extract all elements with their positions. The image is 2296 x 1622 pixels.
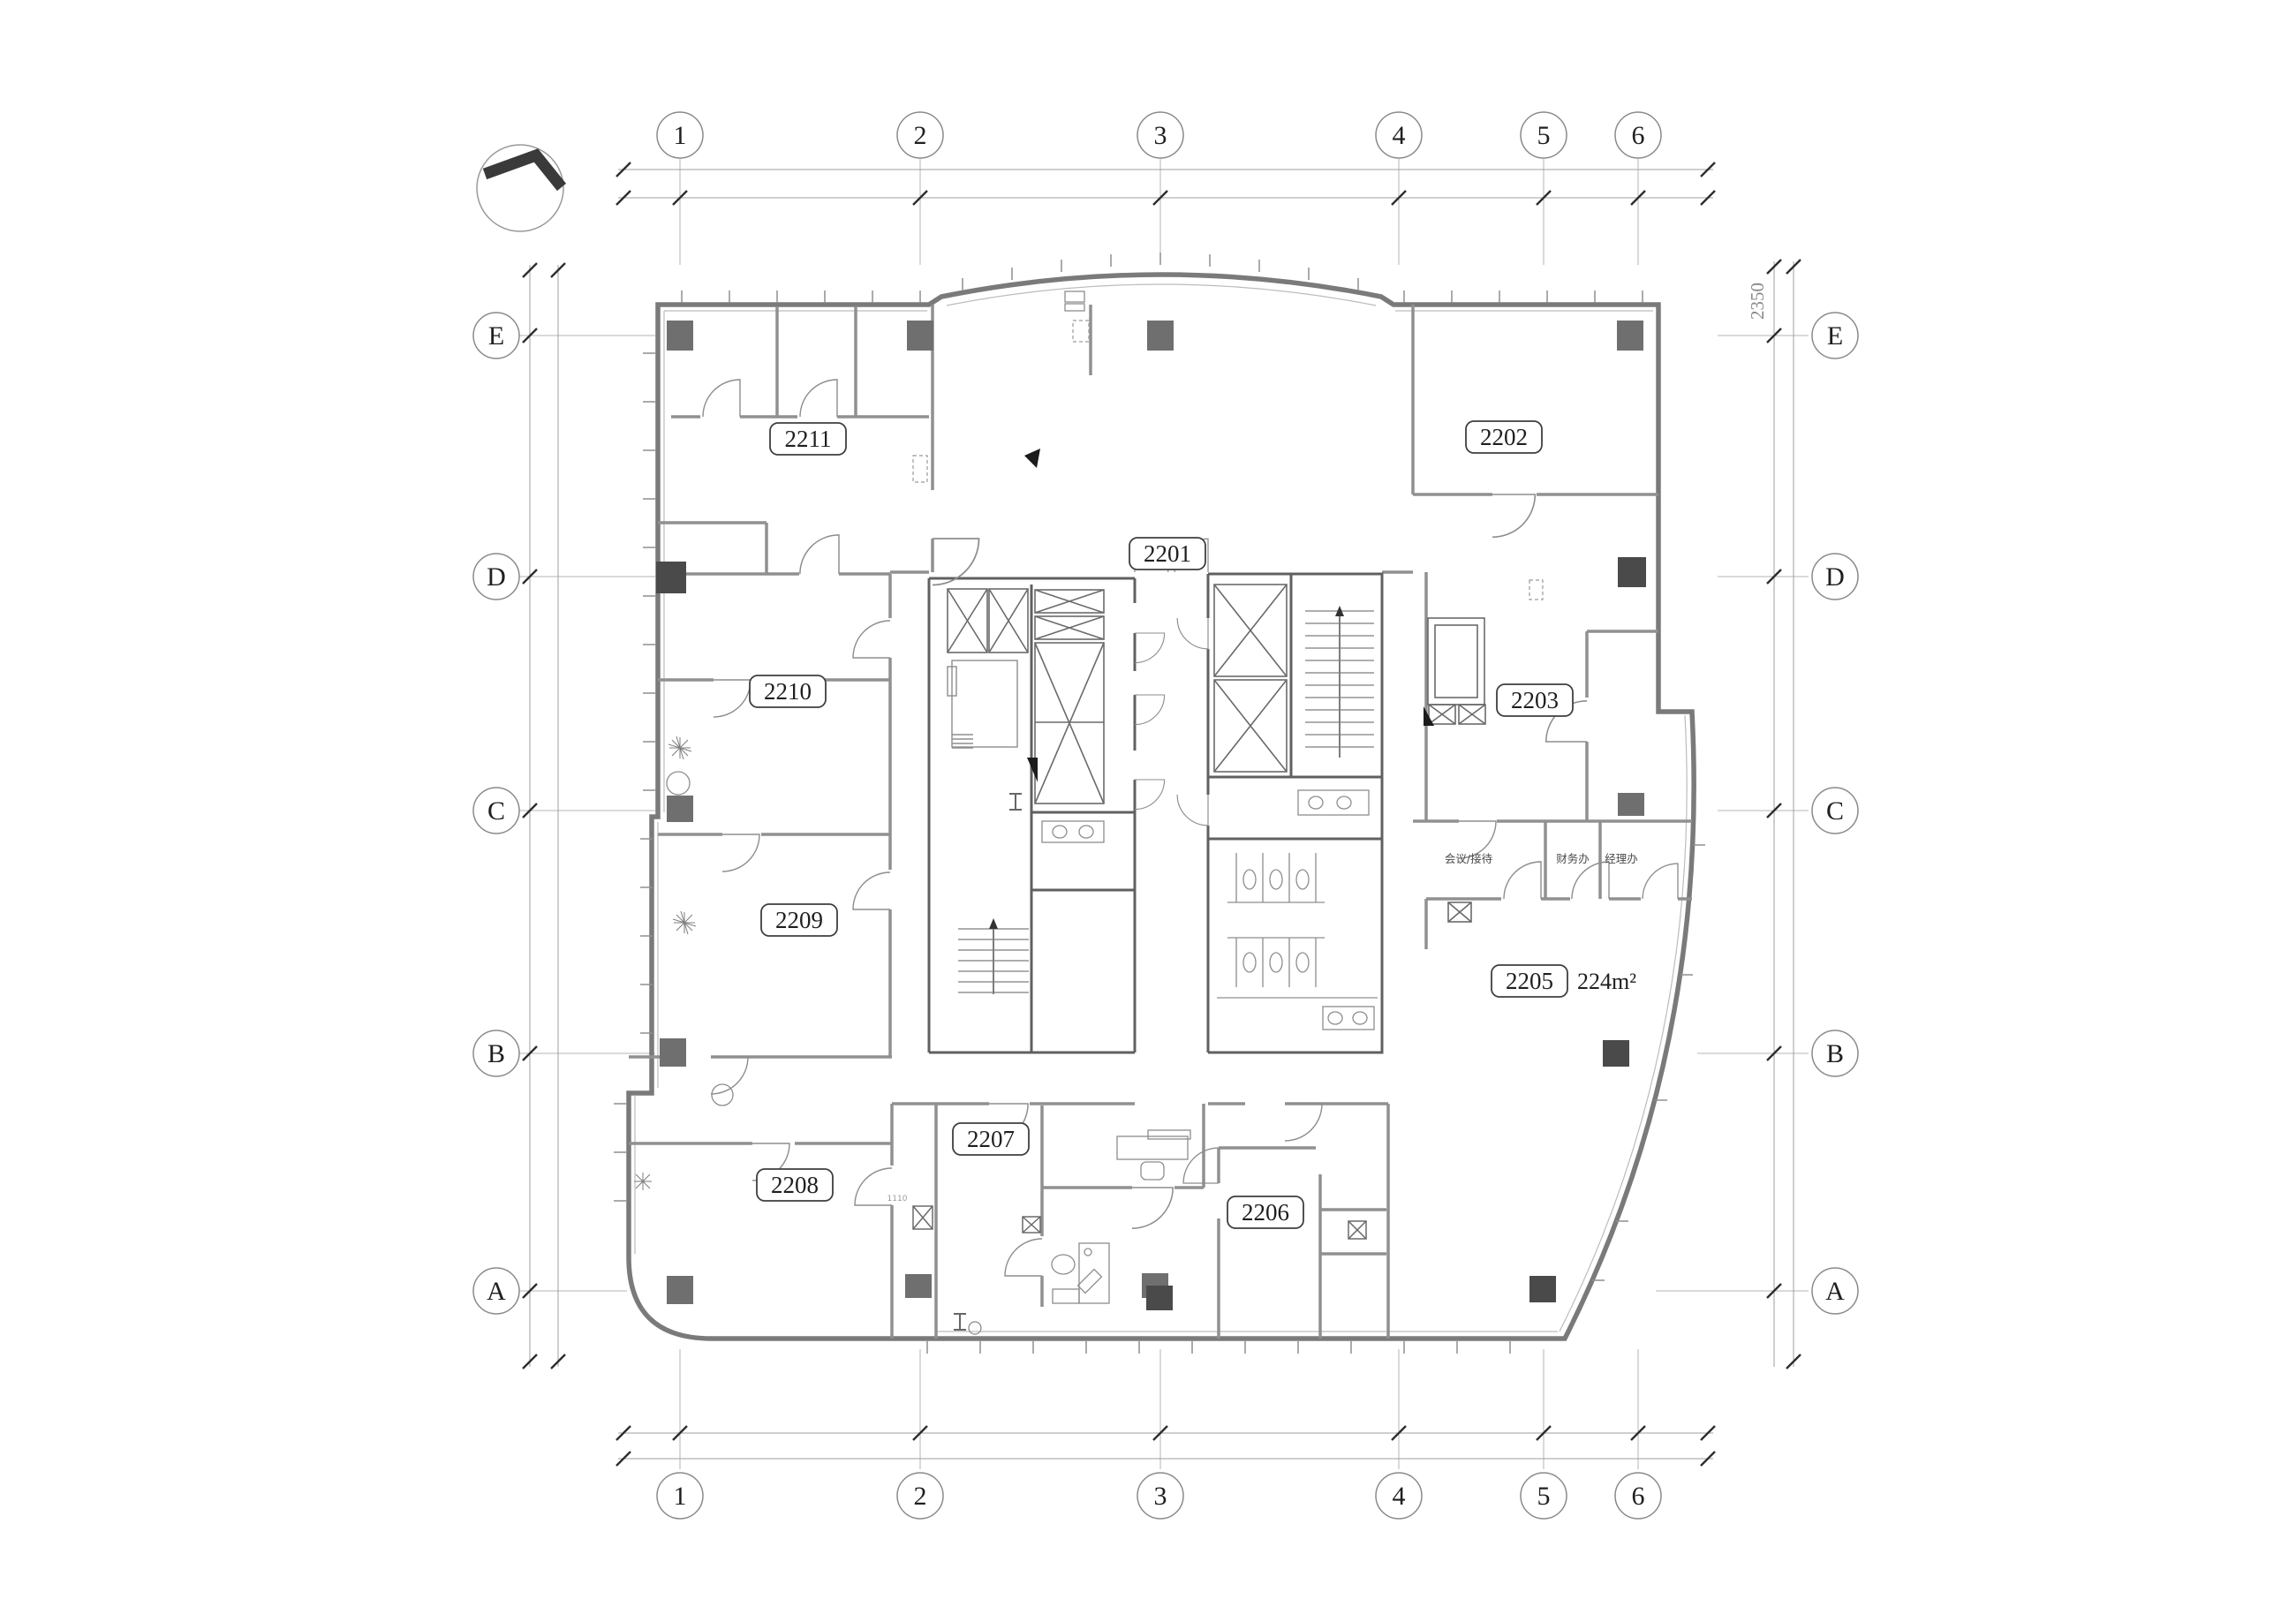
grid-row-B: B — [487, 1039, 505, 1068]
grid-col-6: 6 — [1632, 121, 1645, 150]
elevator-lobby-left — [948, 660, 1017, 748]
shaft-block-ne — [1428, 618, 1485, 922]
grid-col-3: 3 — [1154, 121, 1167, 150]
room-label-2201: 2201 — [1129, 538, 1205, 570]
grid-col-5b: 5 — [1537, 1482, 1551, 1511]
stair-right — [1305, 606, 1374, 758]
room-number: 2208 — [771, 1172, 819, 1198]
plant — [673, 911, 696, 934]
room-label-2206: 2206 — [1227, 1196, 1303, 1228]
door-arc — [800, 535, 839, 574]
plant — [668, 736, 691, 759]
round-table — [667, 772, 690, 795]
room-number: 2210 — [764, 678, 812, 705]
elevator-shafts-left — [948, 589, 1104, 803]
wall-cabinet — [1065, 291, 1084, 311]
grid-bubble-labels-left: E D C B A — [487, 321, 506, 1306]
door-tag: 1110 — [887, 1195, 908, 1203]
floor-plan-drawing: 2350 1 2 3 4 5 6 1 2 3 4 5 6 E D C B A — [0, 0, 2296, 1622]
grid-col-2b: 2 — [914, 1482, 927, 1511]
room-label-2208: 2208 — [757, 1169, 833, 1201]
door-arc — [1177, 795, 1208, 826]
door-arc — [1135, 633, 1165, 663]
room-number: 2207 — [967, 1126, 1015, 1152]
door-arc — [853, 872, 890, 909]
floor-plan-canvas: 2350 1 2 3 4 5 6 1 2 3 4 5 6 E D C B A — [0, 0, 2296, 1622]
door-arc — [800, 380, 837, 417]
grid-col-4b: 4 — [1393, 1482, 1406, 1511]
room-number: 2211 — [785, 426, 832, 452]
door-arc — [1005, 1239, 1042, 1276]
dashed-equipment — [913, 321, 1543, 600]
office-label-meeting: 会议/接待 — [1445, 852, 1493, 865]
door-arc — [1285, 1104, 1322, 1141]
plant — [634, 1173, 652, 1190]
grid-row-E: E — [488, 321, 504, 351]
grid-col-1b: 1 — [674, 1482, 687, 1511]
room-label-2210: 2210 — [750, 675, 826, 707]
room-label-2205: 2205 224m² — [1492, 965, 1636, 997]
north-arrow-icon — [477, 145, 563, 231]
grid-col-1: 1 — [674, 121, 687, 150]
stair-left — [958, 918, 1029, 994]
grid-row-C-r: C — [1826, 796, 1844, 826]
plan-symbols — [913, 321, 1543, 1330]
room-number: 2201 — [1144, 540, 1191, 567]
door-arc — [711, 1057, 748, 1094]
grid-row-A: A — [487, 1277, 506, 1306]
door-arc — [1504, 862, 1541, 899]
grid-bubble-labels-bottom: 1 2 3 4 5 6 — [674, 1482, 1645, 1511]
round-table — [712, 1084, 733, 1105]
door-arc — [1177, 618, 1208, 649]
door-arc — [703, 380, 740, 417]
room-label-2202: 2202 — [1466, 421, 1542, 453]
grid-row-E-r: E — [1827, 321, 1843, 351]
door-arc — [1135, 695, 1165, 725]
section-markers — [1024, 449, 1434, 782]
core-right — [1208, 574, 1382, 1052]
room-number: 2205 — [1506, 968, 1553, 994]
sink-counter-core-left — [1042, 821, 1104, 842]
door-arc — [1492, 494, 1535, 537]
dimension-value: 2350 — [1747, 283, 1768, 320]
door-arc — [1132, 1188, 1173, 1228]
grid-row-B-r: B — [1826, 1039, 1844, 1068]
grid-lines — [519, 159, 1809, 1469]
grid-bubble-labels-right: E D C B A — [1825, 321, 1845, 1306]
room-label-2211: 2211 — [770, 423, 846, 455]
room-labels: 2211 2201 2202 2210 2203 2209 2205 224m²… — [750, 421, 1638, 1228]
grid-bubble-labels-top: 1 2 3 4 5 6 — [674, 121, 1645, 150]
toilet-stalls — [1217, 790, 1378, 1030]
door-arc — [1183, 1148, 1219, 1183]
room-number: 2202 — [1480, 424, 1528, 450]
dimension-lines — [530, 170, 1794, 1459]
elevator-shafts-right — [1214, 585, 1287, 772]
door-arc — [1572, 862, 1609, 899]
office-label-finance: 财务办 — [1556, 852, 1590, 865]
grid-col-3b: 3 — [1154, 1482, 1167, 1511]
round-stool — [969, 1322, 981, 1334]
door-arc — [714, 680, 751, 717]
door-arc — [722, 834, 759, 871]
grid-col-5: 5 — [1537, 121, 1551, 150]
room-number: 2203 — [1511, 687, 1559, 713]
grid-row-A-r: A — [1825, 1277, 1845, 1306]
door-arc — [853, 621, 890, 658]
office-label-manager: 经理办 — [1605, 852, 1638, 865]
grid-row-C: C — [487, 796, 505, 826]
grid-row-D-r: D — [1825, 562, 1845, 592]
steel-column-symbols — [954, 794, 1022, 1330]
desk-south — [1052, 1243, 1109, 1303]
grid-col-2: 2 — [914, 121, 927, 150]
door-swings — [703, 380, 1678, 1276]
door-arc — [1135, 780, 1165, 810]
service-cores — [929, 574, 1485, 1052]
grid-col-6b: 6 — [1632, 1482, 1645, 1511]
room-number: 2206 — [1242, 1199, 1289, 1226]
desk-north — [1117, 1130, 1190, 1180]
room-label-2209: 2209 — [761, 904, 837, 936]
dimension-ticks — [523, 162, 1801, 1466]
room-label-2207: 2207 — [953, 1123, 1029, 1155]
room-number: 2209 — [775, 907, 823, 933]
grid-col-4: 4 — [1393, 121, 1406, 150]
room-label-2203: 2203 — [1497, 684, 1573, 716]
door-arc — [1643, 864, 1678, 899]
grid-row-D: D — [487, 562, 506, 592]
room-area: 224m² — [1577, 969, 1636, 994]
